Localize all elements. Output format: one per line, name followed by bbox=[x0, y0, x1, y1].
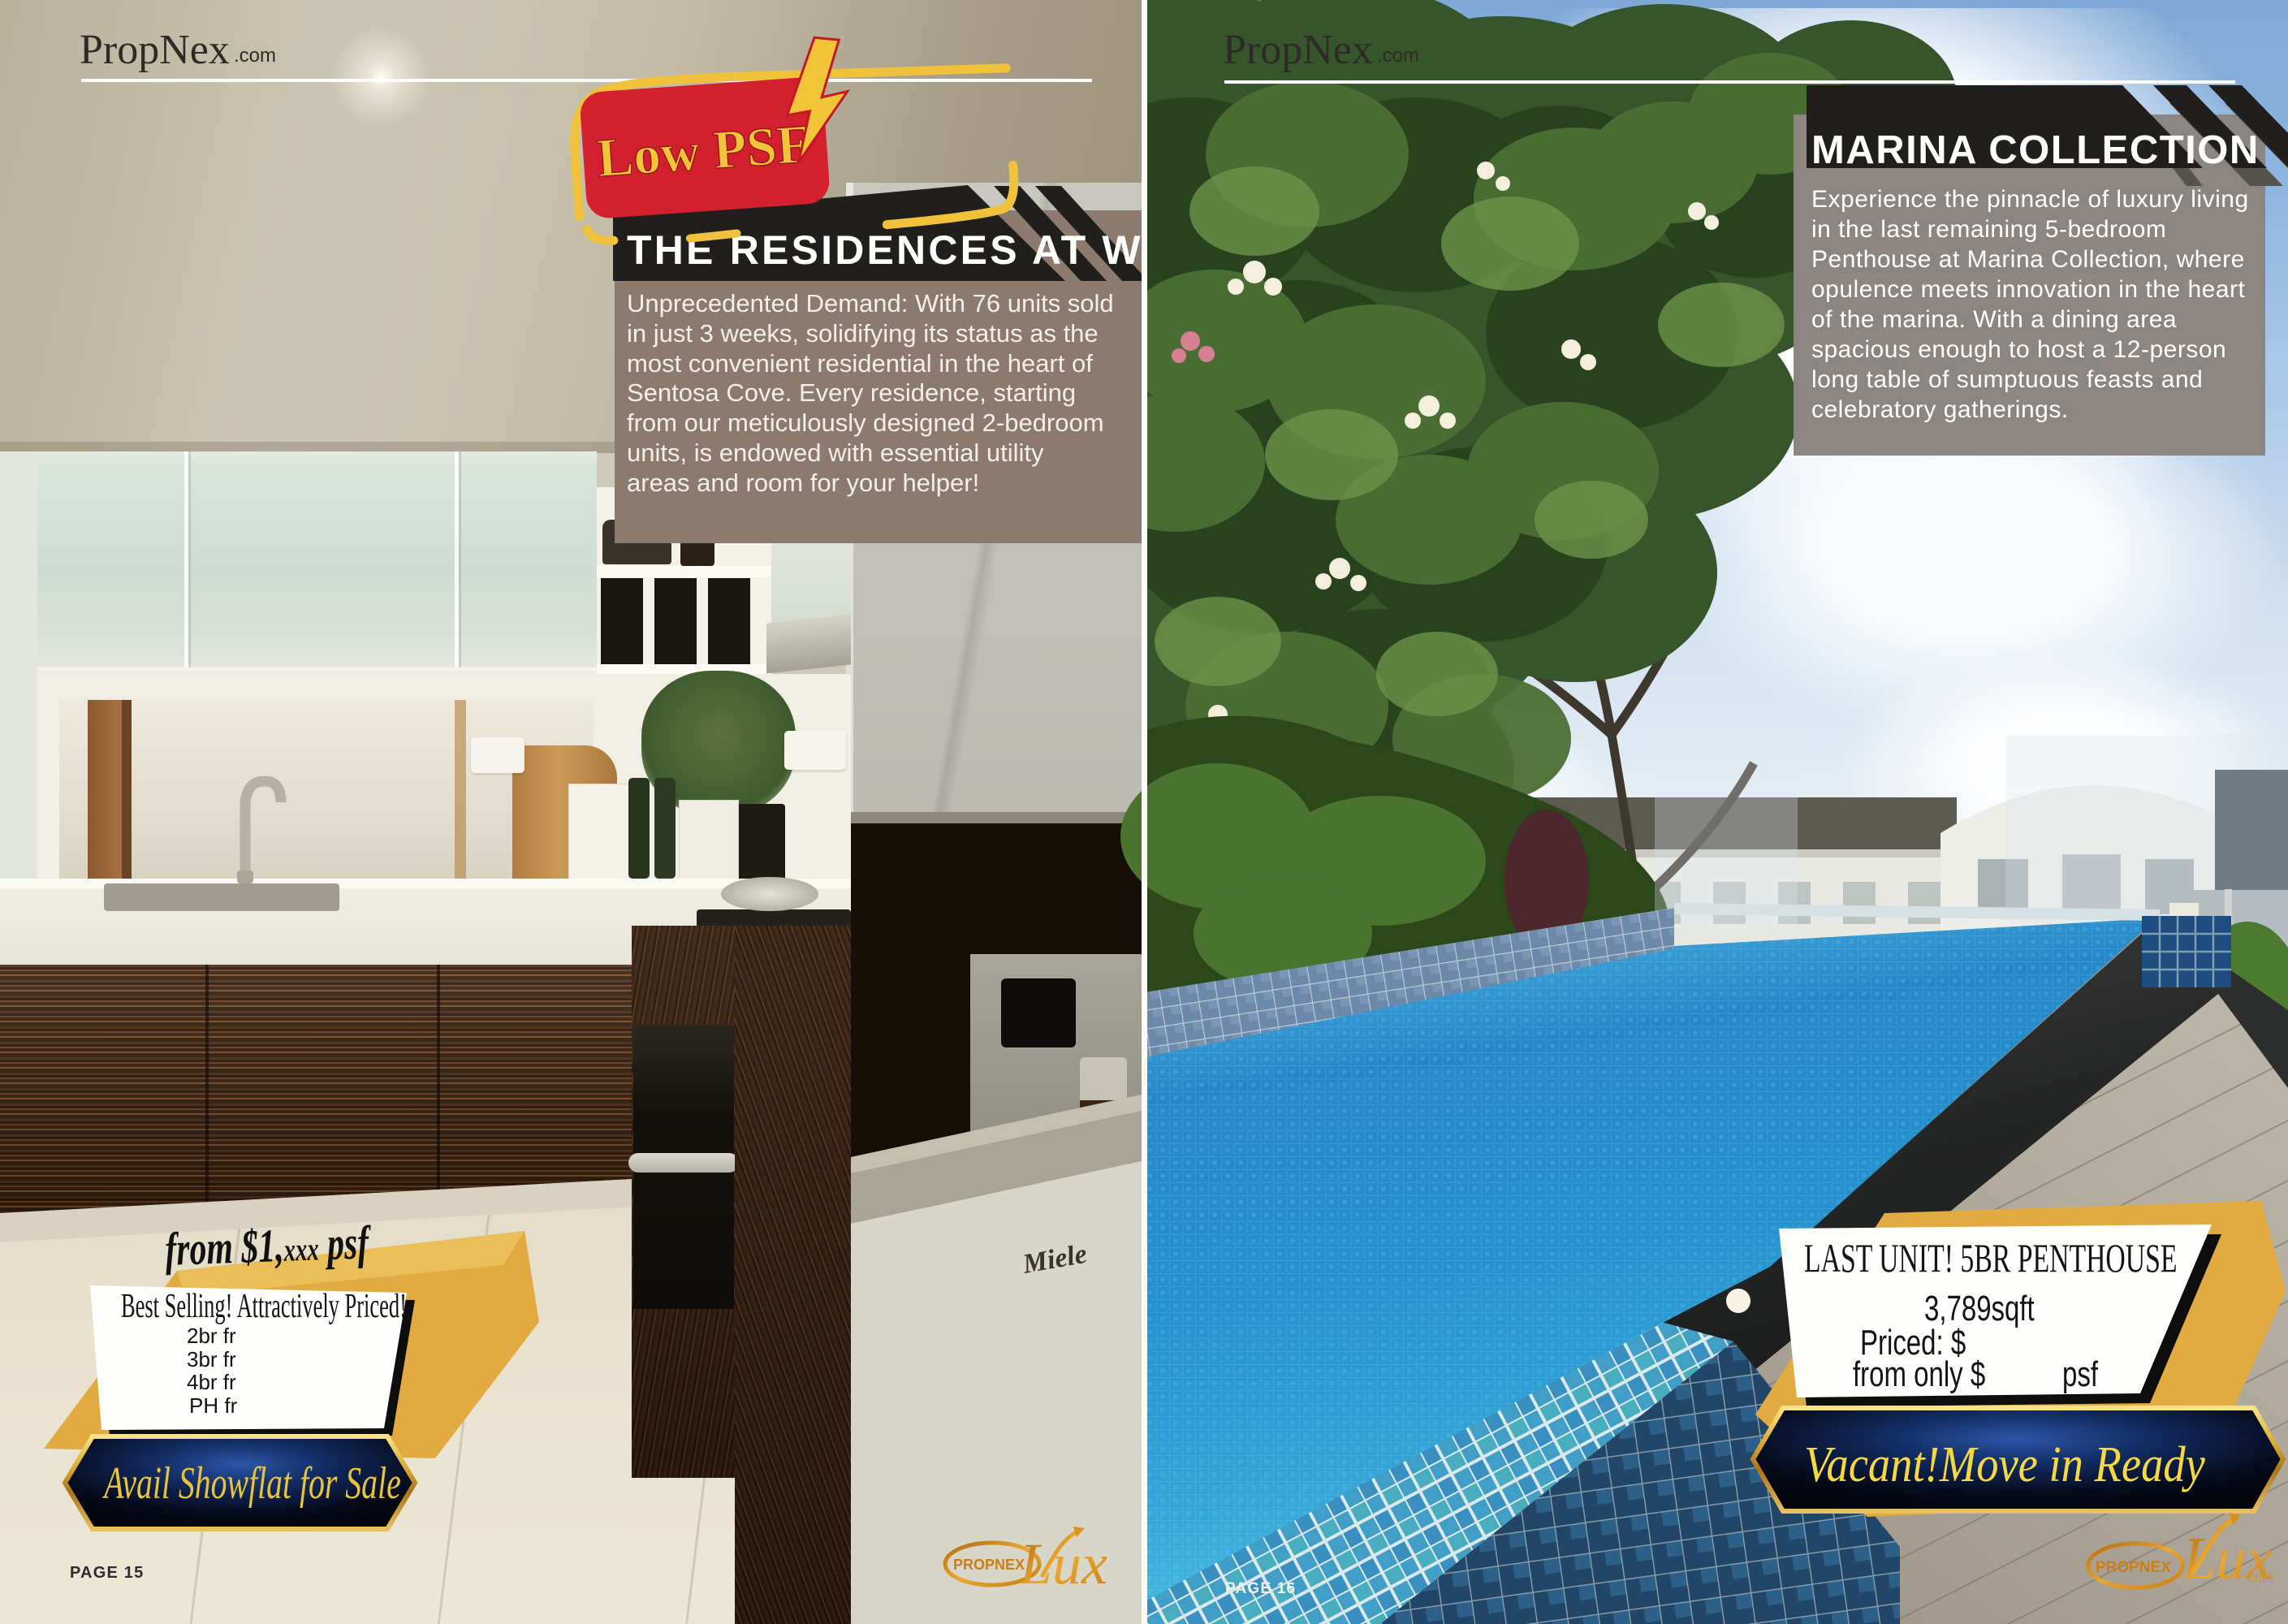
svg-text:Penthouse at Marina Collection: Penthouse at Marina Collection, where bbox=[1811, 246, 2245, 273]
svg-text:Experience the pinnacle of lux: Experience the pinnacle of luxury living bbox=[1811, 186, 2249, 213]
svg-text:PAGE 15: PAGE 15 bbox=[70, 1564, 144, 1582]
svg-text:areas and room for your helper: areas and room for your helper! bbox=[627, 469, 979, 497]
svg-text:long table of sumptuous feasts: long table of sumptuous feasts and bbox=[1811, 366, 2203, 393]
svg-text:PROPNEX: PROPNEX bbox=[953, 1557, 1025, 1573]
svg-text:in the last remaining 5-bedroo: in the last remaining 5-bedroom bbox=[1811, 216, 2166, 243]
svg-text:4br fr: 4br fr bbox=[187, 1370, 236, 1394]
svg-text:PAGE 16: PAGE 16 bbox=[1225, 1580, 1296, 1597]
svg-text:in just 3 weeks, solidifying i: in just 3 weeks, solidifying its status … bbox=[627, 319, 1099, 348]
svg-text:Unprecedented Demand: With 76: Unprecedented Demand: With 76 units sold bbox=[627, 289, 1114, 317]
svg-text:of the marina. With a dining a: of the marina. With a dining area bbox=[1811, 306, 2177, 333]
svg-text:celebratory gatherings.: celebratory gatherings. bbox=[1811, 396, 2069, 423]
svg-text:PropNex: PropNex bbox=[80, 27, 230, 73]
svg-text:Sentosa Cove. Every residence,: Sentosa Cove. Every residence, starting bbox=[627, 378, 1076, 407]
svg-text:PropNex: PropNex bbox=[1223, 27, 1373, 73]
svg-text:most convenient residential in: most convenient residential in the heart… bbox=[627, 349, 1093, 378]
svg-text:PH fr: PH fr bbox=[189, 1393, 238, 1418]
svg-text:.com: .com bbox=[1377, 45, 1419, 67]
svg-text:from $1,xxx psf: from $1,xxx psf bbox=[164, 1216, 373, 1275]
svg-text:Vacant!Move in Ready: Vacant!Move in Ready bbox=[1804, 1436, 2205, 1492]
svg-text:.com: .com bbox=[234, 45, 276, 67]
svg-text:units, is endowed with essenti: units, is endowed with essential utility bbox=[627, 438, 1044, 467]
svg-text:spacious enough to host a 12-p: spacious enough to host a 12-person bbox=[1811, 336, 2226, 363]
svg-text:3br fr: 3br fr bbox=[187, 1347, 236, 1371]
svg-text:Avail Showflat for Sale: Avail Showflat for Sale bbox=[102, 1458, 401, 1508]
svg-text:psf: psf bbox=[2062, 1355, 2098, 1395]
svg-text:Best Selling! Attractively Pri: Best Selling! Attractively Priced! bbox=[121, 1287, 407, 1325]
svg-text:LAST UNIT! 5BR PENTHOUSE: LAST UNIT! 5BR PENTHOUSE bbox=[1804, 1237, 2178, 1281]
svg-text:from only $: from only $ bbox=[1853, 1355, 1985, 1395]
svg-text:opulence meets innovation in t: opulence meets innovation in the heart bbox=[1811, 276, 2246, 303]
svg-text:PROPNEX: PROPNEX bbox=[2096, 1559, 2171, 1576]
svg-text:from our meticulously designed: from our meticulously designed 2-bedroom bbox=[627, 408, 1104, 437]
svg-text:2br fr: 2br fr bbox=[187, 1324, 236, 1348]
svg-text:2024: 2024 bbox=[2249, 1572, 2274, 1585]
svg-text:MARINA COLLECTION: MARINA COLLECTION bbox=[1811, 128, 2260, 172]
